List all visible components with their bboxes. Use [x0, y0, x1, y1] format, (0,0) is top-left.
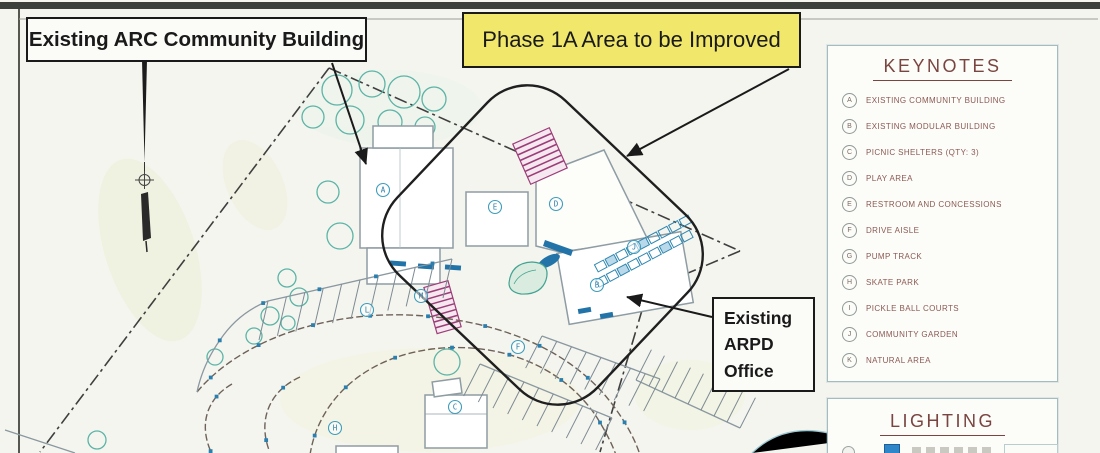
keynote-letter-icon: D — [842, 171, 857, 186]
keynotes-title: KEYNOTES — [873, 56, 1011, 81]
keynote-item: H SKATE PARK — [828, 269, 1057, 295]
svg-text:A: A — [381, 186, 386, 195]
keynote-item: A EXISTING COMMUNITY BUILDING — [828, 87, 1057, 113]
keynote-letter-icon: I — [842, 301, 857, 316]
keynote-letter-icon: A — [842, 93, 857, 108]
keynote-letter-icon: H — [842, 275, 857, 290]
keynote-letter-icon: F — [842, 223, 857, 238]
keynote-label: RESTROOM AND CONCESSIONS — [866, 200, 1002, 209]
keynote-item: K NATURAL AREA — [828, 347, 1057, 373]
keynote-label: EXISTING COMMUNITY BUILDING — [866, 96, 1006, 105]
keynote-letter-icon: E — [842, 197, 857, 212]
keynote-label: SKATE PARK — [866, 278, 919, 287]
svg-text:F: F — [516, 343, 521, 352]
lighting-row-text-placeholder — [912, 447, 992, 453]
keynotes-list: A EXISTING COMMUNITY BUILDING B EXISTING… — [828, 87, 1057, 373]
keynote-label: EXISTING MODULAR BUILDING — [866, 122, 996, 131]
keynote-letter-icon: K — [842, 353, 857, 368]
lighting-title: LIGHTING — [880, 411, 1005, 436]
callout-existing-arpd-office: Existing ARPD Office — [712, 297, 815, 392]
svg-text:D: D — [554, 200, 559, 209]
keynote-label: PICKLE BALL COURTS — [866, 304, 959, 313]
stairs-lower — [424, 281, 461, 334]
lighting-panel: LIGHTING — [827, 398, 1058, 453]
callout-arc-text: Existing ARC Community Building — [29, 28, 364, 52]
building-a-main — [360, 148, 453, 248]
arrow-phase-1a — [627, 69, 789, 156]
keynote-letter-icon: G — [842, 249, 857, 264]
keynote-item: D PLAY AREA — [828, 165, 1057, 191]
svg-text:J: J — [632, 243, 637, 252]
keynotes-panel: KEYNOTES A EXISTING COMMUNITY BUILDING B… — [827, 45, 1058, 382]
callout-arpd-line3: Office — [724, 358, 774, 384]
keynote-label: PLAY AREA — [866, 174, 913, 183]
keynote-item: J COMMUNITY GARDEN — [828, 321, 1057, 347]
callout-arpd-line2: ARPD — [724, 331, 774, 357]
keynote-label: NATURAL AREA — [866, 356, 931, 365]
keynote-item: I PICKLE BALL COURTS — [828, 295, 1057, 321]
building-e-restroom — [466, 192, 528, 246]
building-a-upper — [373, 126, 433, 148]
callout-existing-arc-community-building: Existing ARC Community Building — [26, 17, 367, 62]
svg-text:L: L — [365, 306, 370, 315]
lighting-legend-row — [828, 443, 1057, 453]
scanned-site-plan-page: AEDBJMLFCH Existing ARC Community Buildi… — [0, 0, 1100, 453]
keynote-item: E RESTROOM AND CONCESSIONS — [828, 191, 1057, 217]
keynote-label: PUMP TRACK — [866, 252, 922, 261]
scan-edge-band — [0, 2, 1100, 9]
svg-text:E: E — [493, 203, 498, 212]
lighting-qty-box — [1004, 444, 1058, 453]
keynote-item: B EXISTING MODULAR BUILDING — [828, 113, 1057, 139]
callout-arpd-line1: Existing — [724, 305, 792, 331]
svg-text:M: M — [419, 292, 424, 301]
keynote-label: COMMUNITY GARDEN — [866, 330, 958, 339]
lighting-symbol-icon — [842, 446, 855, 453]
keynote-letter-icon: J — [842, 327, 857, 342]
keynote-label: PICNIC SHELTERS (QTY: 3) — [866, 148, 979, 157]
keynote-item: G PUMP TRACK — [828, 243, 1057, 269]
planting-bed — [509, 262, 547, 294]
callout-phase-text: Phase 1A Area to be Improved — [482, 27, 780, 53]
keynote-letter-icon: B — [842, 119, 857, 134]
lighting-fixture-swatch-icon — [884, 444, 900, 453]
keynote-item: F DRIVE AISLE — [828, 217, 1057, 243]
svg-text:H: H — [333, 424, 338, 433]
svg-text:C: C — [453, 403, 458, 412]
callout-phase-1a-highlight: Phase 1A Area to be Improved — [462, 12, 801, 68]
keynote-letter-icon: C — [842, 145, 857, 160]
keynote-label: DRIVE AISLE — [866, 226, 919, 235]
keynote-item: C PICNIC SHELTERS (QTY: 3) — [828, 139, 1057, 165]
svg-text:B: B — [595, 281, 600, 290]
